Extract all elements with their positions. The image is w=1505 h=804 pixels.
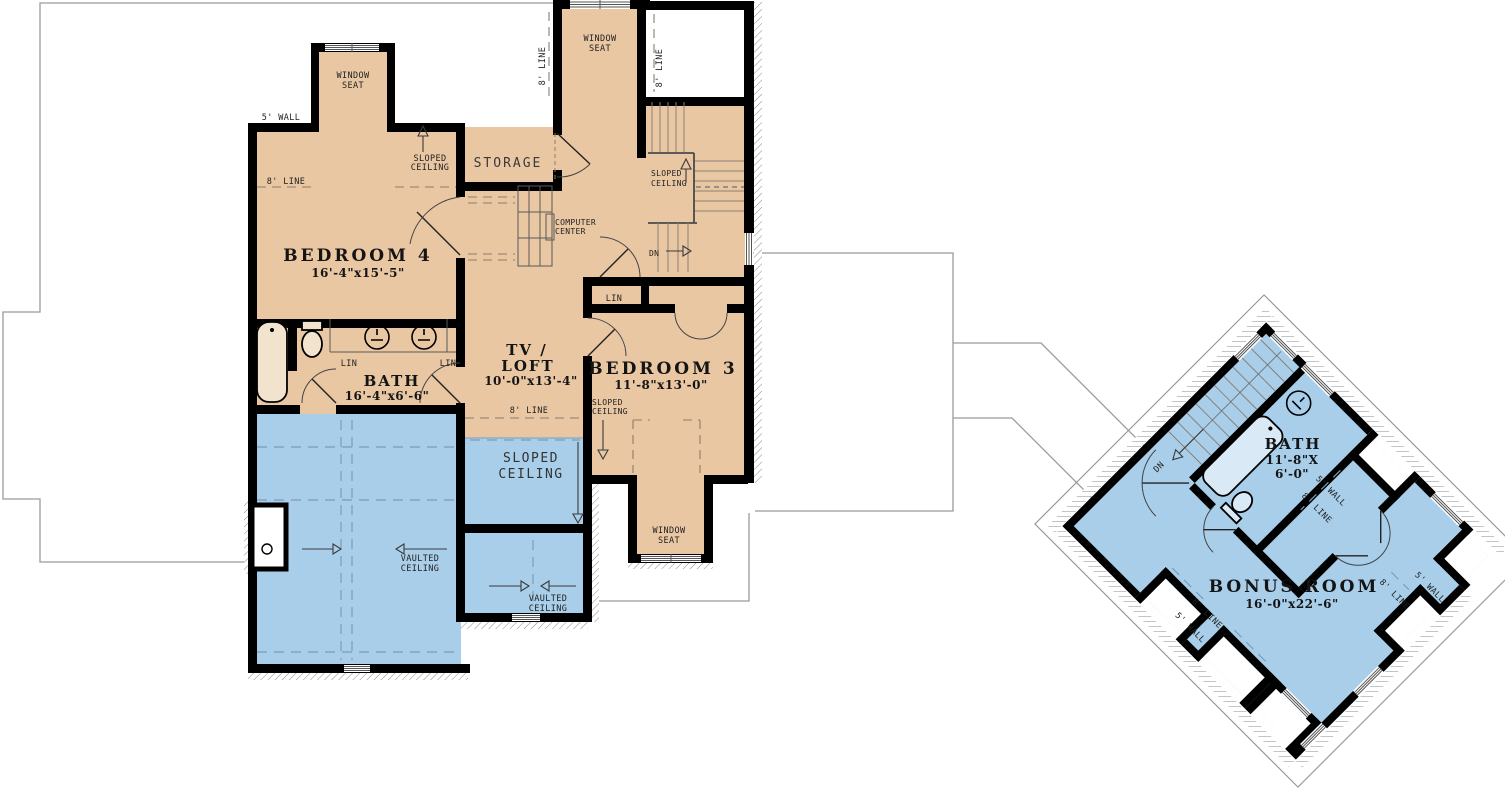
label-window-seat-top-1: WINDOW xyxy=(583,34,617,44)
label-vaulted1-2: CEILING xyxy=(401,564,440,574)
tub-faucet xyxy=(270,328,274,332)
toilet-bowl xyxy=(302,331,322,357)
label-sloped-bedroom3-1: SLOPED xyxy=(592,398,623,407)
bedroom3-window-seat-floor xyxy=(637,483,704,560)
window-bedroom4-seat xyxy=(325,43,379,52)
label-lin-vanity-right: LIN xyxy=(440,359,457,369)
label-storage: STORAGE xyxy=(474,156,543,171)
floor-plan-page: 5' WALL 8' LINE WINDOW SEAT WINDOW SEAT … xyxy=(0,0,1505,804)
floor-plan-drawing: 5' WALL 8' LINE WINDOW SEAT WINDOW SEAT … xyxy=(0,0,1505,804)
label-bath-bonus-dims2: 6'-0" xyxy=(1275,467,1309,481)
label-bath-main-dims: 16'-4"x6'-6" xyxy=(345,389,430,403)
label-lin-closet: LIN xyxy=(606,294,623,304)
label-window-seat-b3-2: SEAT xyxy=(658,536,680,546)
label-bonus-room-dims: 16'-0"x22'-6" xyxy=(1245,597,1339,611)
floor-fills xyxy=(252,8,748,673)
label-vaulted1-1: VAULTED xyxy=(401,554,440,564)
label-bedroom4-name: BEDROOM 4 xyxy=(283,246,432,266)
label-tvloft-dims: 10'-0"x13'-4" xyxy=(484,374,578,388)
label-computer-1: COMPUTER xyxy=(555,218,596,227)
hall-loft-floor xyxy=(465,127,588,438)
label-sloped-blue-2: CEILING xyxy=(498,467,563,482)
bathtub xyxy=(257,322,287,402)
window-top-seat xyxy=(570,0,630,9)
window-right-wall xyxy=(745,233,753,265)
toilet-tank xyxy=(302,321,322,330)
label-sloped-storage-2: CEILING xyxy=(411,163,450,173)
label-lin-vanity-left: LIN xyxy=(341,359,358,369)
label-vaulted2-1: VAULTED xyxy=(529,594,568,604)
label-window-seat-top-2: SEAT xyxy=(589,44,611,54)
main-plan: 5' WALL 8' LINE WINDOW SEAT WINDOW SEAT … xyxy=(244,0,762,680)
label-vaulted2-2: CEILING xyxy=(529,604,568,614)
window-vaulted-room xyxy=(344,665,370,672)
label-dn-stairs: DN xyxy=(649,249,659,258)
label-sloped-stairs-2: CEILING xyxy=(651,179,687,188)
label-window-seat-b4-1: WINDOW xyxy=(336,71,370,81)
label-bedroom3-name: BEDROOM 3 xyxy=(588,359,737,379)
label-8-line-column-left: 8' LINE xyxy=(538,47,548,86)
label-window-seat-b3-1: WINDOW xyxy=(652,526,686,536)
label-bath-bonus-dims1: 11'-8"X xyxy=(1266,453,1319,467)
chimney xyxy=(252,505,286,569)
label-5-wall-bedroom4: 5' WALL xyxy=(262,113,301,123)
label-bonus-room-name: BONUS ROOM xyxy=(1209,577,1380,597)
label-sloped-stairs-1: SLOPED xyxy=(651,169,682,178)
label-sloped-bedroom3-2: CEILING xyxy=(592,407,628,416)
label-bath-main-name: BATH xyxy=(364,372,421,390)
bonus-wing: 5' WALL 8' LINE 5' WALL 8' LINE 8' LINE … xyxy=(1035,295,1505,787)
label-8-line-column-right: 8' LINE xyxy=(655,49,665,88)
label-window-seat-b4-2: SEAT xyxy=(342,81,364,91)
label-tvloft-name2: LOFT xyxy=(501,357,554,375)
label-8-line-tvloft: 8' LINE xyxy=(510,406,549,416)
label-bath-bonus-name: BATH xyxy=(1265,435,1322,453)
label-bedroom4-dims: 16'-4"x15'-5" xyxy=(311,266,405,280)
label-sloped-blue-1: SLOPED xyxy=(503,451,559,466)
label-8-line-bedroom4: 8' LINE xyxy=(267,177,306,187)
label-bedroom3-dims: 11'-8"x13'-0" xyxy=(614,378,708,392)
window-vaulted2-room xyxy=(512,614,540,621)
label-computer-2: CENTER xyxy=(555,227,586,236)
window-bedroom3-seat xyxy=(641,554,701,563)
